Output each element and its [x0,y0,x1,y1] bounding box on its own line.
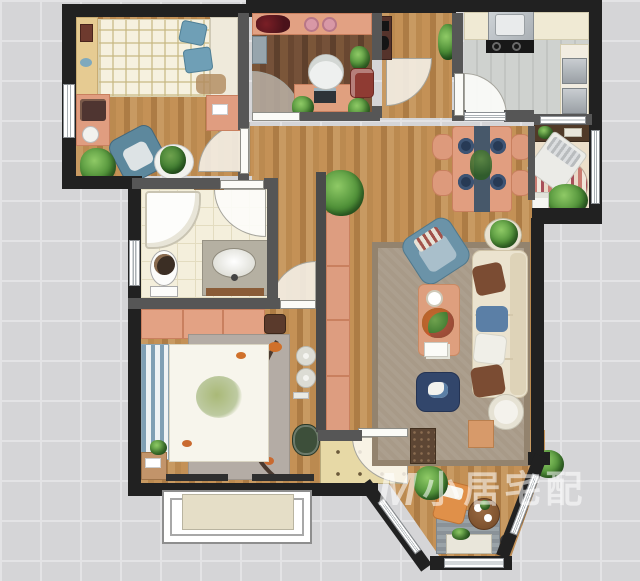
master-speaker-2 [296,368,316,388]
coffee-table-flowers [422,308,454,338]
window-kitchen-serving [464,112,506,121]
tea-table-plant [480,500,490,510]
coffee-table-clock [426,290,443,307]
entry-doormat [410,428,436,464]
study-door-leaf [252,112,300,121]
hall-console-cabinet [326,212,350,432]
wall-bathroom-top-left [132,178,220,189]
wall-nook-divider [528,126,535,200]
study-office-chair [308,54,344,90]
sofa-pillow-brown-top [471,261,507,297]
study-reading-chair [350,68,374,98]
balcony-plant-large [414,466,448,500]
wall-study-right [372,13,382,60]
dining-centerpiece [470,150,492,180]
wall-bathroom-right [267,178,278,304]
study-side-cabinet [252,36,267,64]
master-window-sill-2 [252,474,314,481]
kitchen-burner-1 [492,42,501,51]
study-decor-plate-2 [322,17,337,32]
wall-study-bottom [300,112,380,121]
wall-left-lower [128,176,141,496]
bedroom2-door-leaf [240,128,249,174]
study-laptop [314,88,336,103]
hall-plant [320,170,364,216]
duvet-leaf-2 [182,440,192,447]
wall-bedroom2-right [238,13,249,130]
study-shelf-flowers [256,15,290,33]
wall-entry-door [318,430,362,441]
sofa-pillow-white [472,332,507,366]
tea-table-cup-2 [484,514,492,522]
master-speaker-1 [296,346,316,366]
bedroom2-blanket-fold [196,74,226,94]
dining-plate-4 [490,174,506,190]
wall-top-right [450,0,602,12]
duvet-floral-motif [196,376,242,418]
kitchen-door-leaf [454,73,464,116]
kitchen-burner-2 [512,42,521,51]
master-bay-window-panel [182,494,294,530]
wall-top-left [62,4,252,17]
dining-plate-1 [458,138,474,154]
coffee-table-books [424,342,448,357]
duvet-leaf-1 [236,352,246,359]
window-nook-right [591,130,600,204]
bathroom-door-leaf [220,180,264,189]
wall-kitchen-right [589,0,602,122]
dining-plate-2 [458,174,474,190]
bathroom-vanity-shelf [206,288,264,296]
bedroom2-vanity-tray [80,99,106,121]
wall-top-mid [246,0,456,13]
window-balcony-bottom [444,558,504,568]
bedroom2-shelf-item-blue [80,58,92,67]
wall-kitchen-bottom-right [504,110,534,122]
living-stool-plant [490,220,518,248]
bedroom2-rug-plant [160,146,186,174]
sofa-backrest [510,253,526,395]
wall-master-top [128,298,280,309]
master-window-sill-1 [166,474,228,481]
bedroom2-pillow-2 [182,46,213,74]
bedroom2-shelf-item [80,24,93,42]
wall-center-stub [316,172,326,432]
study-plant-shelf [350,46,370,70]
master-door-leaf [280,300,316,309]
wall-living-right [531,218,544,462]
floorplan-canvas: M 小居宅配 [0,0,640,581]
window-bedroom2-left [63,84,75,138]
nightstand-tray [145,458,161,468]
living-sofa [472,250,528,398]
bathroom-faucet [231,274,238,281]
nook-shelf-items [564,128,582,137]
master-nightstand-plant [150,440,167,455]
kitchen-sink-basin [495,14,525,36]
bedroom2-stool [82,126,99,143]
master-corner-stool [264,314,286,334]
sofa-pillow-blue [476,306,508,332]
dining-chair-tl [432,134,454,160]
balcony-bench-plant [452,528,470,540]
window-nook-top [540,116,586,124]
dining-chair-bl [432,170,454,196]
bathroom-toilet-tank [150,286,178,297]
dining-plate-3 [490,138,506,154]
kitchen-appliance-2 [562,88,587,114]
pouf-toy [428,382,448,398]
sofa-pillow-brown-bottom [470,364,506,399]
living-bench [468,420,494,448]
bathroom-toilet-seat [154,254,175,275]
window-bathroom-left [129,240,140,286]
master-remote [293,392,309,399]
wall-kitchen-left [452,13,463,77]
entry-door-leaf [358,428,408,437]
study-decor-plate-1 [304,17,319,32]
kitchen-appliance-1 [562,58,587,84]
bedroom2-dresser-paper [212,104,228,115]
